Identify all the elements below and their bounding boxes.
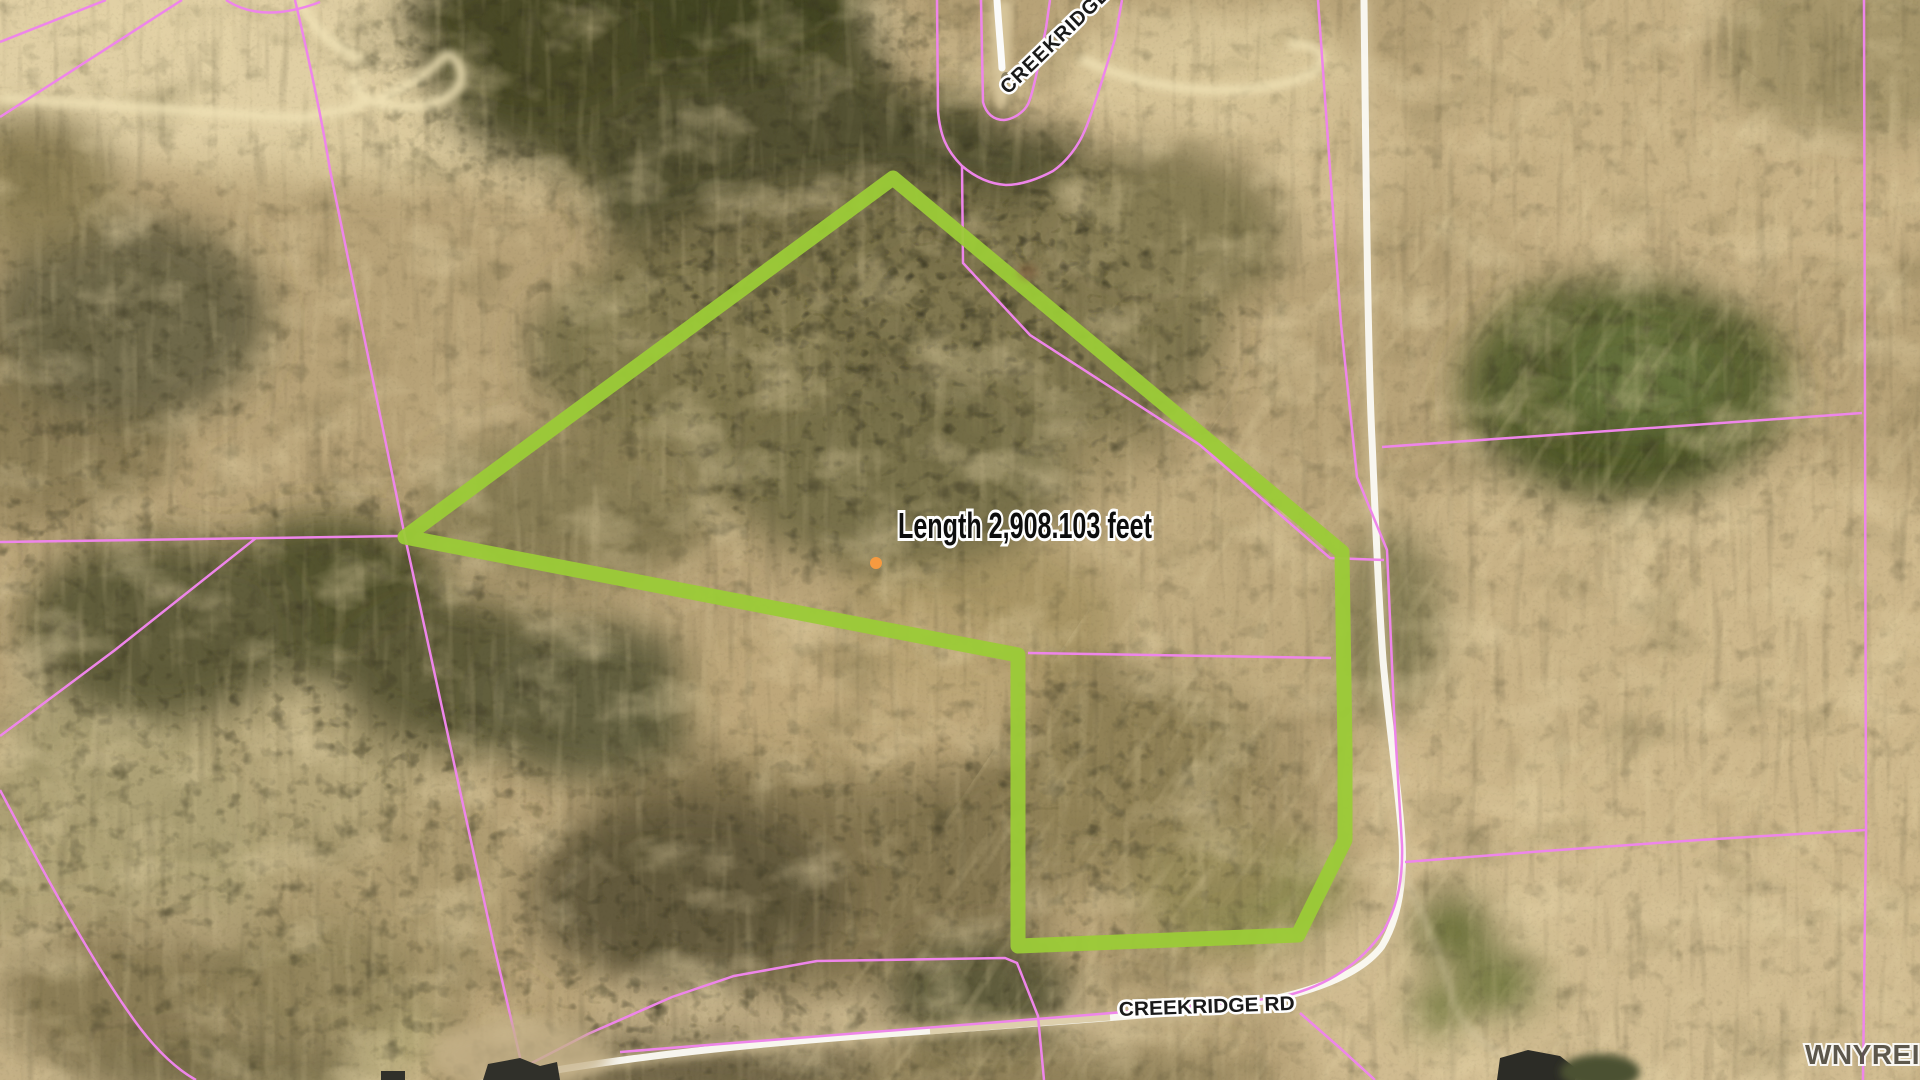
svg-text:Length 2,908.103 feet: Length 2,908.103 feet (898, 505, 1152, 546)
svg-text:WNYREI: WNYREI (1805, 1039, 1920, 1070)
